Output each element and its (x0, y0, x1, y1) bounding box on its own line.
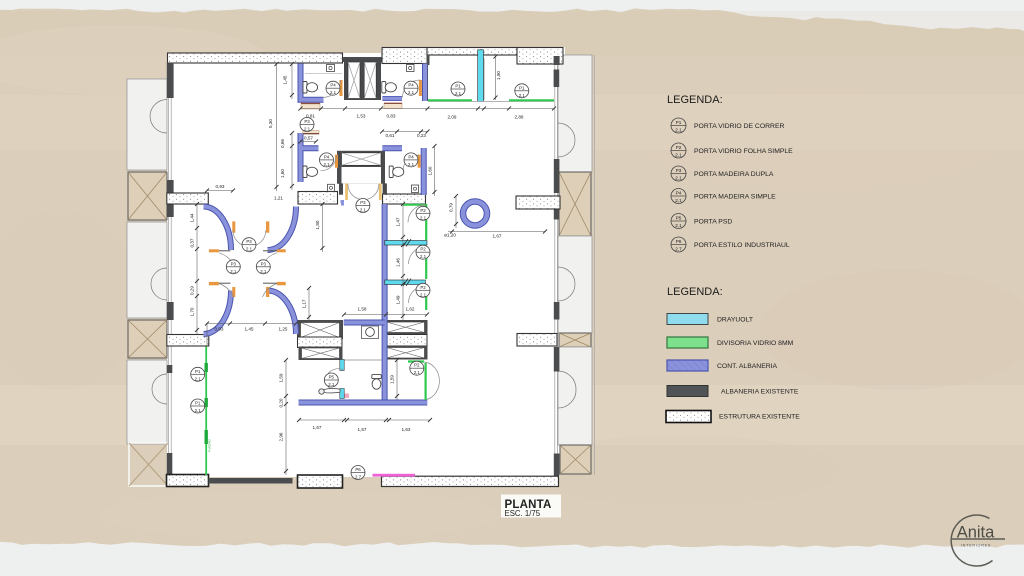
svg-text:2,09: 2,09 (448, 115, 457, 120)
svg-text:LEGENDA:: LEGENDA: (667, 94, 723, 106)
svg-text:0,29: 0,29 (190, 286, 195, 295)
svg-text:0,83: 0,83 (387, 114, 396, 119)
svg-text:PORTA MADEIRA SIMPLE: PORTA MADEIRA SIMPLE (694, 194, 776, 201)
svg-text:1,67: 1,67 (313, 425, 322, 430)
svg-text:P2: P2 (676, 145, 682, 150)
svg-text:P5: P5 (329, 375, 335, 380)
svg-text:ALBANERIA EXISTENTE: ALBANERIA EXISTENTE (721, 389, 799, 396)
svg-text:1,67: 1,67 (493, 234, 502, 239)
svg-text:P1: P1 (195, 401, 201, 406)
svg-text:P2: P2 (420, 247, 426, 252)
svg-text:P.VIDRIO: P.VIDRIO (208, 439, 212, 452)
svg-text:2,7: 2,7 (675, 247, 682, 252)
svg-text:2,1: 2,1 (408, 90, 415, 95)
svg-text:1,47: 1,47 (396, 217, 401, 226)
svg-text:0,57: 0,57 (304, 136, 313, 141)
svg-text:2,1: 2,1 (420, 215, 427, 220)
svg-text:P5: P5 (676, 216, 682, 221)
svg-text:2,1: 2,1 (195, 376, 202, 381)
svg-text:2,1: 2,1 (246, 247, 253, 252)
svg-text:P1: P1 (195, 369, 201, 374)
svg-text:1,45: 1,45 (283, 75, 288, 84)
svg-text:2,1: 2,1 (360, 208, 367, 213)
svg-text:0,93: 0,93 (215, 327, 224, 332)
svg-text:2,96: 2,96 (279, 432, 284, 441)
svg-text:1,59: 1,59 (279, 373, 284, 382)
svg-text:0,37: 0,37 (190, 238, 195, 247)
svg-text:P2: P2 (420, 208, 426, 213)
svg-text:1,59: 1,59 (390, 375, 395, 384)
svg-text:P4: P4 (676, 191, 682, 196)
svg-text:1,57: 1,57 (358, 427, 367, 432)
svg-text:2,1: 2,1 (675, 223, 682, 228)
svg-text:P3: P3 (676, 168, 682, 173)
svg-text:LEGENDA:: LEGENDA: (667, 286, 723, 298)
svg-text:ESTRUTURA EXISTENTE: ESTRUTURA EXISTENTE (719, 414, 800, 421)
svg-text:2,7: 2,7 (355, 475, 362, 480)
svg-text:P2: P2 (414, 363, 420, 368)
svg-text:P1: P1 (455, 84, 461, 89)
svg-text:2,1: 2,1 (420, 292, 427, 297)
svg-text:2,1: 2,1 (455, 91, 462, 96)
svg-text:2,1: 2,1 (420, 254, 427, 259)
svg-text:PORTA ESTILO INDUSTRIAUL: PORTA ESTILO INDUSTRIAUL (694, 242, 790, 249)
svg-text:2,1: 2,1 (260, 269, 267, 274)
svg-text:P3: P3 (246, 239, 252, 244)
svg-text:P3: P3 (261, 261, 267, 266)
svg-text:CONT. ALBANERIA: CONT. ALBANERIA (717, 363, 778, 370)
svg-text:Anita: Anita (957, 524, 995, 542)
svg-text:0,66: 0,66 (280, 139, 285, 148)
svg-text:PORTA PSD: PORTA PSD (694, 219, 732, 226)
svg-text:5,30: 5,30 (268, 119, 273, 128)
svg-text:2,1: 2,1 (414, 370, 421, 375)
svg-text:2,1: 2,1 (675, 176, 682, 181)
svg-text:DRAYUOLT: DRAYUOLT (717, 317, 753, 324)
svg-text:0,79: 0,79 (449, 203, 454, 212)
svg-text:P3: P3 (304, 119, 310, 124)
svg-text:0,93: 0,93 (216, 184, 225, 189)
svg-text:1,21: 1,21 (274, 196, 283, 201)
svg-text:1,80: 1,80 (315, 220, 320, 229)
svg-text:DIVISORIA VIDRIO 8MM: DIVISORIA VIDRIO 8MM (717, 340, 794, 347)
svg-text:P6: P6 (355, 467, 361, 472)
svg-text:P4: P4 (408, 83, 414, 88)
svg-text:1,17: 1,17 (302, 299, 307, 308)
svg-text:P1: P1 (676, 120, 682, 125)
svg-text:2,1: 2,1 (195, 408, 202, 413)
svg-text:2,1: 2,1 (519, 93, 526, 98)
svg-text:PORTA VIDRIO FOLHA SIMPLE: PORTA VIDRIO FOLHA SIMPLE (694, 148, 793, 155)
svg-text:0,23: 0,23 (417, 133, 426, 138)
svg-text:1,63: 1,63 (402, 427, 411, 432)
svg-text:1,46: 1,46 (396, 258, 401, 267)
svg-text:2,1: 2,1 (675, 128, 682, 133)
svg-text:2,1: 2,1 (323, 162, 330, 167)
svg-text:1,60: 1,60 (280, 169, 285, 178)
svg-text:1,44: 1,44 (190, 213, 195, 222)
svg-text:INTERIORES: INTERIORES (961, 544, 991, 548)
svg-text:PORTA VIDRIO DE CORRER: PORTA VIDRIO DE CORRER (694, 123, 784, 130)
svg-text:2,88: 2,88 (515, 115, 524, 120)
svg-text:1,25: 1,25 (279, 327, 288, 332)
svg-text:P4: P4 (330, 83, 336, 88)
svg-text:1,62: 1,62 (406, 307, 415, 312)
svg-text:P1: P1 (519, 85, 525, 90)
svg-text:P2: P2 (420, 285, 426, 290)
svg-text:P4: P4 (324, 154, 330, 159)
svg-text:ø1,20: ø1,20 (444, 233, 456, 238)
svg-text:0,20: 0,20 (279, 398, 284, 407)
svg-text:1,45: 1,45 (245, 327, 254, 332)
svg-text:0,61: 0,61 (386, 133, 395, 138)
svg-text:1,53: 1,53 (357, 114, 366, 119)
svg-text:P3: P3 (231, 261, 237, 266)
svg-text:1,49: 1,49 (396, 295, 401, 304)
svg-text:2,1: 2,1 (675, 198, 682, 203)
svg-text:P4: P4 (408, 154, 414, 159)
svg-text:1,58: 1,58 (358, 307, 367, 312)
svg-text:2,1: 2,1 (330, 90, 337, 95)
svg-text:2,1: 2,1 (408, 162, 415, 167)
svg-text:1,60: 1,60 (428, 166, 433, 175)
svg-text:1,70: 1,70 (190, 307, 195, 316)
svg-text:PORTA MADEIRA DUPLA: PORTA MADEIRA DUPLA (694, 171, 774, 178)
svg-text:2,1: 2,1 (675, 153, 682, 158)
svg-text:1,90: 1,90 (496, 71, 501, 80)
svg-text:P6: P6 (676, 239, 682, 244)
svg-text:2,1: 2,1 (328, 382, 335, 387)
svg-text:2,1: 2,1 (230, 269, 237, 274)
svg-text:P3: P3 (360, 200, 366, 205)
svg-text:2,1: 2,1 (304, 127, 311, 132)
svg-text:ESC. 1/75: ESC. 1/75 (505, 509, 541, 518)
